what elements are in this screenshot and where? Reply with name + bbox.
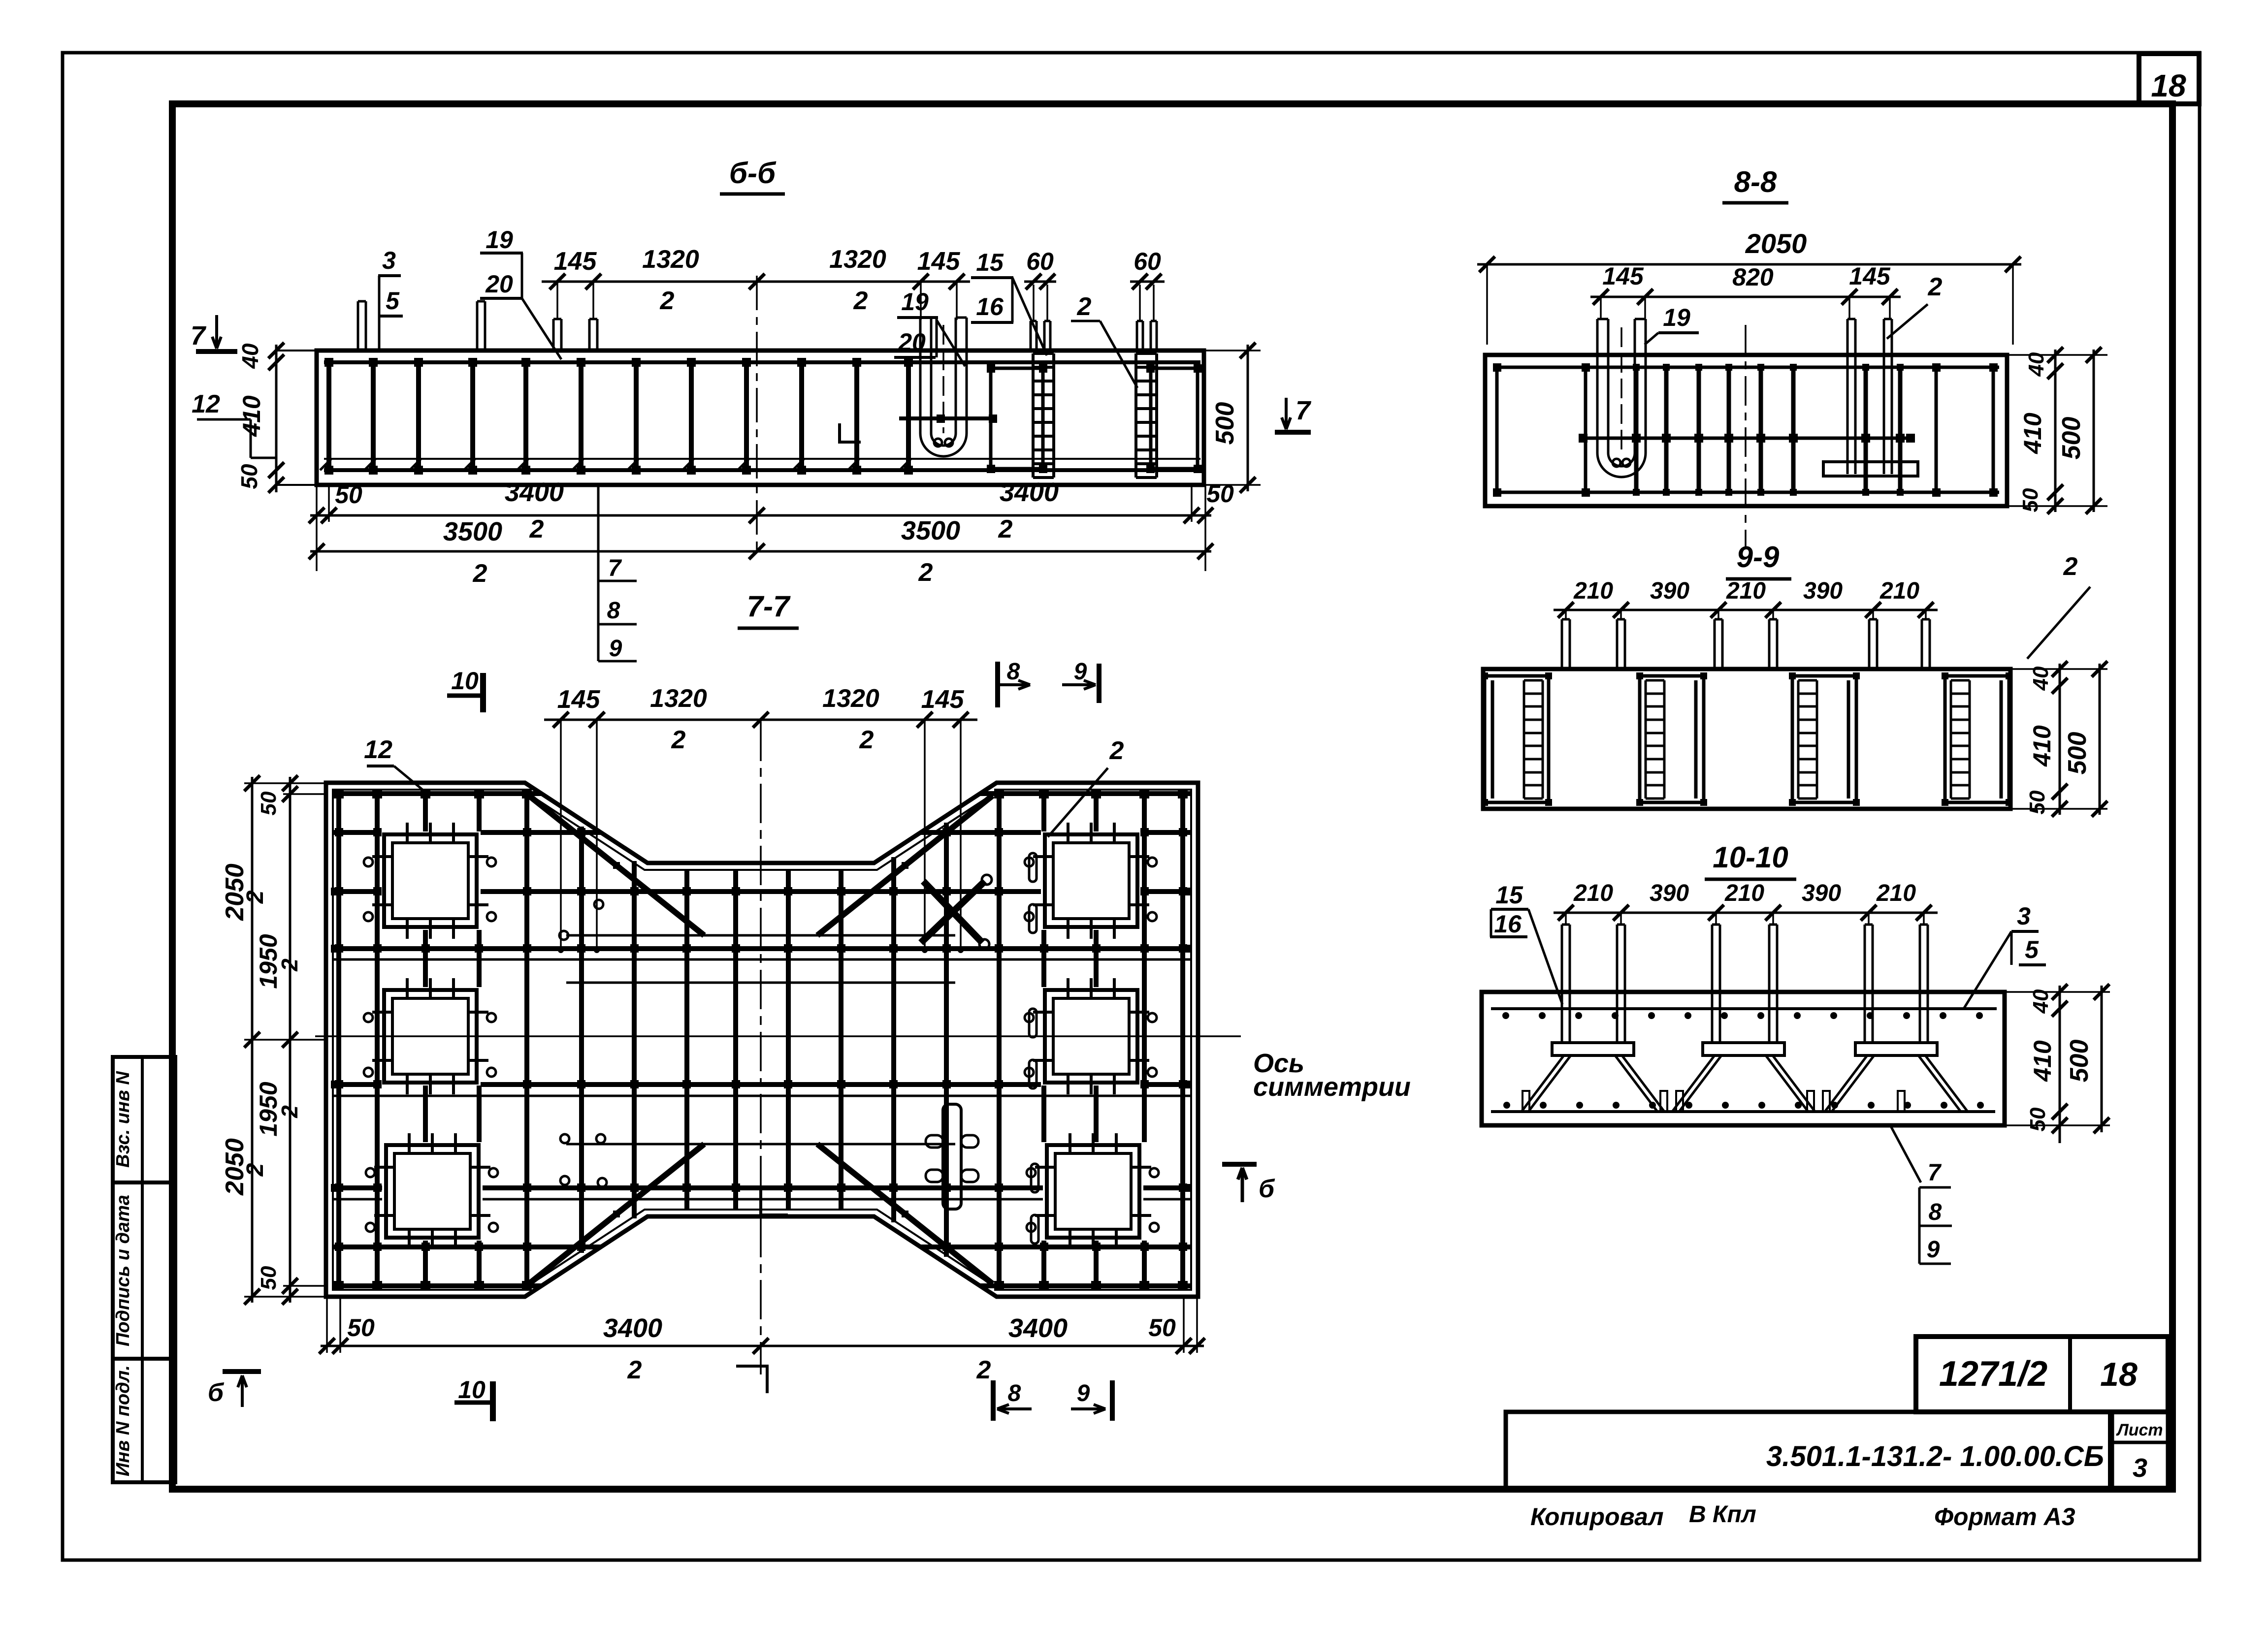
svg-text:3400: 3400 (1008, 1313, 1068, 1343)
svg-text:2: 2 (660, 287, 675, 315)
svg-text:210: 210 (1724, 880, 1764, 906)
svg-text:3400: 3400 (603, 1313, 662, 1343)
svg-text:50: 50 (335, 481, 362, 509)
svg-text:500: 500 (2065, 1040, 2094, 1083)
svg-text:3500: 3500 (901, 516, 960, 545)
svg-text:2: 2 (529, 515, 544, 543)
svg-text:Инв N подл.: Инв N подл. (113, 1365, 133, 1476)
svg-text:Взс. инв N: Взс. инв N (113, 1071, 133, 1168)
svg-text:б: б (1259, 1175, 1275, 1203)
svg-text:40: 40 (2029, 989, 2053, 1014)
svg-text:210: 210 (1573, 880, 1613, 906)
svg-text:16: 16 (1494, 910, 1522, 938)
svg-text:2050: 2050 (1745, 228, 1807, 259)
svg-text:12: 12 (364, 735, 392, 764)
svg-text:2: 2 (242, 890, 268, 904)
svg-text:3400: 3400 (1000, 478, 1059, 507)
svg-text:15: 15 (1495, 881, 1523, 909)
svg-text:210: 210 (1876, 880, 1916, 906)
svg-text:19: 19 (901, 288, 929, 316)
svg-text:2: 2 (976, 1356, 991, 1384)
svg-text:2: 2 (242, 1163, 268, 1177)
svg-text:1320: 1320 (642, 245, 699, 274)
svg-text:7: 7 (1296, 396, 1312, 425)
svg-text:18: 18 (2100, 1356, 2138, 1393)
svg-text:20: 20 (898, 328, 926, 356)
svg-text:145: 145 (1602, 262, 1644, 290)
svg-text:50: 50 (257, 791, 281, 815)
svg-text:16: 16 (976, 293, 1004, 320)
svg-text:2: 2 (1077, 292, 1092, 321)
svg-text:1320: 1320 (829, 245, 886, 274)
svg-text:5: 5 (386, 287, 400, 315)
svg-text:8-8: 8-8 (1734, 165, 1777, 198)
svg-text:2: 2 (1928, 273, 1943, 301)
svg-text:390: 390 (1802, 880, 1841, 906)
svg-text:2: 2 (2063, 552, 2078, 581)
svg-text:210: 210 (1726, 578, 1766, 604)
svg-text:б-б: б-б (729, 157, 777, 190)
svg-text:50: 50 (1148, 1314, 1176, 1341)
svg-text:40: 40 (237, 343, 263, 369)
svg-text:390: 390 (1803, 578, 1843, 604)
svg-text:7-7: 7-7 (747, 590, 791, 623)
svg-text:Подпись и дата: Подпись и дата (113, 1195, 133, 1346)
svg-text:3400: 3400 (505, 478, 564, 507)
svg-text:1320: 1320 (822, 684, 879, 713)
svg-text:1271/2: 1271/2 (1939, 1354, 2047, 1394)
svg-text:50: 50 (257, 1266, 281, 1290)
svg-text:8: 8 (1929, 1199, 1942, 1225)
svg-text:Копировал: Копировал (1530, 1503, 1664, 1531)
svg-text:2: 2 (918, 558, 933, 587)
svg-text:Лист: Лист (2115, 1421, 2163, 1439)
svg-text:3500: 3500 (443, 517, 502, 546)
svg-text:8: 8 (607, 598, 620, 624)
svg-text:9: 9 (1077, 1380, 1090, 1406)
svg-text:9-9: 9-9 (1737, 541, 1780, 574)
svg-text:2: 2 (277, 958, 302, 972)
svg-text:60: 60 (1134, 248, 1161, 275)
svg-text:2: 2 (998, 515, 1013, 543)
svg-text:210: 210 (1573, 578, 1613, 604)
svg-text:2: 2 (671, 726, 686, 754)
svg-text:б: б (208, 1378, 225, 1407)
svg-text:50: 50 (347, 1314, 375, 1341)
svg-text:19: 19 (1663, 304, 1690, 331)
svg-text:500: 500 (1211, 402, 1239, 445)
svg-text:18: 18 (2151, 68, 2186, 103)
svg-text:145: 145 (557, 685, 601, 714)
svg-text:12: 12 (192, 390, 220, 418)
svg-text:симметрии: симметрии (1253, 1072, 1411, 1102)
svg-text:8: 8 (1007, 659, 1020, 685)
svg-text:60: 60 (1026, 248, 1054, 275)
svg-text:2: 2 (859, 726, 874, 754)
svg-text:8: 8 (1008, 1380, 1021, 1406)
svg-text:50: 50 (236, 464, 262, 489)
svg-text:3: 3 (382, 247, 396, 274)
svg-text:500: 500 (2057, 417, 2086, 460)
svg-text:40: 40 (2029, 666, 2053, 691)
svg-text:9: 9 (609, 636, 622, 662)
svg-text:5: 5 (2025, 936, 2039, 963)
svg-text:2: 2 (277, 1105, 302, 1118)
svg-text:145: 145 (917, 247, 961, 276)
svg-text:50: 50 (2026, 1107, 2050, 1131)
svg-text:410: 410 (2019, 413, 2046, 454)
svg-text:7: 7 (191, 321, 207, 351)
svg-text:410: 410 (2029, 1040, 2056, 1082)
svg-text:2: 2 (1109, 736, 1124, 765)
svg-text:3: 3 (2133, 1453, 2147, 1483)
svg-text:145: 145 (921, 685, 965, 714)
svg-text:820: 820 (1732, 263, 1774, 291)
svg-text:1320: 1320 (650, 684, 707, 713)
svg-text:2: 2 (853, 287, 868, 315)
svg-text:50: 50 (1206, 480, 1234, 508)
svg-text:9: 9 (1074, 659, 1087, 685)
svg-text:3.501.1-131.2- 1.00.00.СБ: 3.501.1-131.2- 1.00.00.СБ (1766, 1440, 2104, 1472)
svg-text:10: 10 (458, 1376, 486, 1404)
svg-text:145: 145 (1849, 262, 1891, 290)
svg-text:410: 410 (2028, 725, 2056, 767)
svg-text:19: 19 (486, 226, 513, 254)
svg-text:210: 210 (1879, 578, 1919, 604)
svg-text:15: 15 (976, 249, 1004, 276)
svg-text:500: 500 (2063, 732, 2092, 775)
svg-text:9: 9 (1927, 1237, 1940, 1263)
svg-text:390: 390 (1650, 578, 1689, 604)
svg-text:3: 3 (2017, 902, 2031, 930)
svg-text:Формат А3: Формат А3 (1934, 1503, 2075, 1531)
svg-text:40: 40 (2024, 352, 2048, 377)
svg-text:В Кпл: В Кпл (1689, 1501, 1756, 1528)
svg-text:50: 50 (2025, 790, 2049, 814)
svg-text:7: 7 (1928, 1160, 1942, 1186)
svg-text:10-10: 10-10 (1713, 841, 1788, 874)
svg-text:2: 2 (627, 1356, 642, 1384)
svg-text:20: 20 (485, 270, 513, 298)
svg-text:10: 10 (451, 667, 479, 695)
svg-text:390: 390 (1650, 880, 1689, 906)
svg-text:50: 50 (2018, 488, 2042, 512)
svg-text:145: 145 (554, 247, 597, 276)
svg-text:2: 2 (473, 559, 487, 588)
svg-text:7: 7 (608, 555, 622, 581)
